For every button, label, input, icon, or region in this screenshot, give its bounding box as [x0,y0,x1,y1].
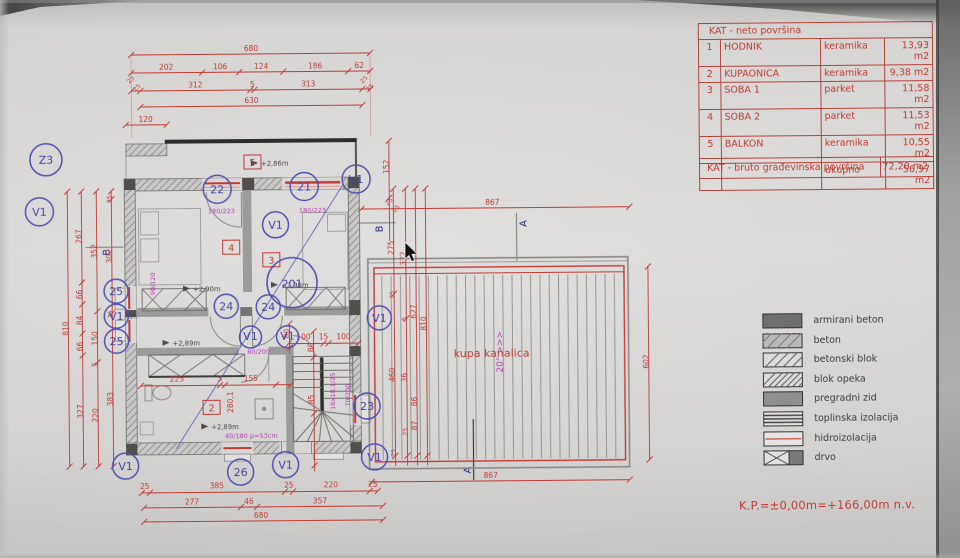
svg-text:302: 302 [105,249,114,264]
bruto-value: 72,20 m2 [880,157,933,176]
svg-text:V1: V1 [109,310,124,323]
legend-swatch-armirani-beton [762,313,802,328]
svg-text:Z3: Z3 [39,154,54,167]
legend-label: toplinska izolacija [814,412,898,424]
svg-text:87: 87 [410,421,419,431]
svg-text:180/223: 180/223 [299,206,326,214]
svg-text:46: 46 [244,497,254,506]
svg-text:120: 120 [138,115,153,124]
legend-swatch-hidroizolacija [763,431,803,446]
svg-text:155: 155 [244,374,259,383]
svg-text:V1: V1 [278,459,293,472]
svg-text:25: 25 [126,75,136,85]
legend-label: hidroizolacija [814,432,877,444]
legend-item: hidroizolacija [763,430,898,446]
svg-text:385: 385 [210,481,225,490]
svg-text:810: 810 [61,321,70,336]
section-letter-b: B [375,225,386,232]
svg-text:5: 5 [249,158,255,169]
svg-text:25: 25 [389,291,396,299]
svg-text:867: 867 [484,471,499,480]
legend-swatch-toplinska-izolacija [763,411,803,426]
svg-text:313: 313 [301,79,316,88]
svg-text:152: 152 [382,159,391,174]
svg-text:25: 25 [140,482,150,491]
legend-item: blok opeka [763,371,898,387]
svg-text:277: 277 [185,497,200,506]
legend-label: beton [813,334,841,345]
svg-text:25: 25 [359,75,369,85]
section-letter-a: A [518,220,529,227]
svg-text:23: 23 [360,400,374,413]
svg-text:327: 327 [76,404,85,419]
svg-text:22: 22 [210,183,224,196]
svg-text:66: 66 [76,341,85,351]
svg-text:+2,89m: +2,89m [211,423,239,431]
legend-swatch-betonski-blok [763,352,803,367]
svg-text:275: 275 [387,240,396,255]
materials-legend: armirani beton beton betonski blok blok … [762,312,899,470]
svg-text:86: 86 [410,397,419,407]
svg-text:V1: V1 [243,330,258,343]
svg-text:810: 810 [419,316,428,331]
legend-swatch-pregradni-zid [763,392,803,407]
photographed-floor-plan-screen: B B A A kupa kanalica 20° >>> [0,0,960,558]
svg-text:25: 25 [390,449,397,457]
svg-text:70/200: 70/200 [344,384,352,407]
table-row: 2 KUPAONICA keramika 9,38 m2 [699,64,932,82]
legend-swatch-blok-opeka [763,372,803,387]
svg-text:267: 267 [75,229,84,244]
svg-text:202: 202 [159,63,174,72]
svg-text:680: 680 [244,44,259,53]
svg-text:15: 15 [319,332,329,341]
svg-text:16x18,1/25: 16x18,1/25 [329,373,337,410]
svg-text:40/180 p=53cm: 40/180 p=53cm [225,432,278,440]
svg-text:357: 357 [313,496,328,505]
svg-text:5: 5 [91,362,100,367]
svg-text:90/120: 90/120 [149,272,157,295]
svg-text:383: 383 [106,392,115,407]
svg-text:220: 220 [324,480,339,489]
svg-text:25: 25 [109,335,123,348]
svg-text:66: 66 [75,289,84,299]
svg-text:+2,89m: +2,89m [173,339,201,347]
legend-item: armirani beton [762,312,897,328]
svg-text:680: 680 [254,511,269,520]
legend-item: betonski blok [763,352,898,368]
svg-text:352: 352 [90,244,99,259]
legend-item: beton [762,332,897,348]
svg-text:V1: V1 [118,460,133,473]
drawing-sheet: B B A A kupa kanalica 20° >>> [0,0,960,558]
svg-text:21: 21 [297,180,311,193]
svg-text:80: 80 [307,342,316,352]
svg-text:V1: V1 [367,451,382,464]
svg-text:5: 5 [217,374,222,383]
legend-label: pregradni zid [814,393,877,405]
svg-text:36: 36 [400,373,409,383]
legend-label: blok opeka [814,373,866,384]
svg-text:V1: V1 [280,330,295,343]
svg-text:220: 220 [91,408,100,423]
svg-text:25: 25 [284,481,294,490]
svg-text:225: 225 [170,375,185,384]
svg-text:25: 25 [132,83,142,93]
svg-text:24: 24 [219,300,233,313]
svg-text:280,1: 280,1 [226,391,235,413]
svg-text:V1: V1 [372,312,387,325]
svg-text:5: 5 [401,317,408,321]
svg-text:24: 24 [261,301,275,314]
legend-item: toplinska izolacija [763,410,898,426]
table-row: 3 SOBA 1 parket 11,58 m2 [699,80,932,109]
roof-slope-label: 20° >>> [495,331,505,373]
svg-text:180/223: 180/223 [208,207,235,215]
legend-item: pregradni zid [763,391,898,407]
svg-text:150: 150 [90,331,99,346]
svg-text:V1: V1 [32,206,47,219]
mouse-cursor [403,241,423,265]
svg-text:25: 25 [106,195,113,203]
svg-text:201: 201 [281,278,302,291]
svg-text:124: 124 [254,62,269,71]
legend-label: armirani beton [813,314,883,326]
svg-text:2: 2 [209,403,215,414]
svg-text:186: 186 [308,61,323,70]
svg-text:85: 85 [307,394,316,404]
svg-text:62: 62 [354,61,364,70]
svg-text:627: 627 [409,304,418,319]
svg-text:25: 25 [109,285,123,298]
svg-text:312: 312 [188,80,203,89]
svg-text:80/200: 80/200 [247,348,270,356]
legend-item: drvo [764,450,899,466]
svg-text:V1: V1 [268,219,283,232]
legend-swatch-drvo [764,450,804,465]
table-row: 1 HODNIK keramika 13,93 m2 [699,37,932,66]
svg-text:84: 84 [75,315,84,325]
svg-text:867: 867 [485,198,500,207]
svg-text:25: 25 [365,83,375,93]
legend-label: drvo [815,452,836,463]
bruto-area-table: KAT - bruto građevinska površina 72,20 m… [699,156,934,179]
svg-text:100: 100 [336,332,351,341]
datum-note: K.P.=±0,00m=+166,00m n.v. [739,497,915,513]
bruto-label: KAT - bruto građevinska površina [700,162,880,175]
svg-text:106: 106 [213,62,228,71]
left-dimensions [64,188,116,469]
table-row: 4 SOBA 2 parket 11,53 m2 [700,107,933,136]
svg-text:4: 4 [228,243,234,254]
legend-swatch-beton [762,333,802,348]
svg-text:25: 25 [402,428,409,436]
roof-label: kupa kanalica [454,347,530,361]
svg-text:26: 26 [234,466,248,479]
svg-text:460: 460 [388,367,397,382]
svg-text:602: 602 [642,354,651,369]
balcony [126,140,357,179]
svg-text:630: 630 [244,96,259,105]
svg-text:5: 5 [250,80,255,89]
legend-label: betonski blok [814,354,878,366]
svg-text:+2,86m: +2,86m [261,160,289,168]
svg-text:V1: V1 [349,173,364,186]
bottom-dimension-labels: 25 385 25 220 25 277 46 357 680 [140,480,378,521]
svg-text:+2,90m: +2,90m [193,285,221,293]
